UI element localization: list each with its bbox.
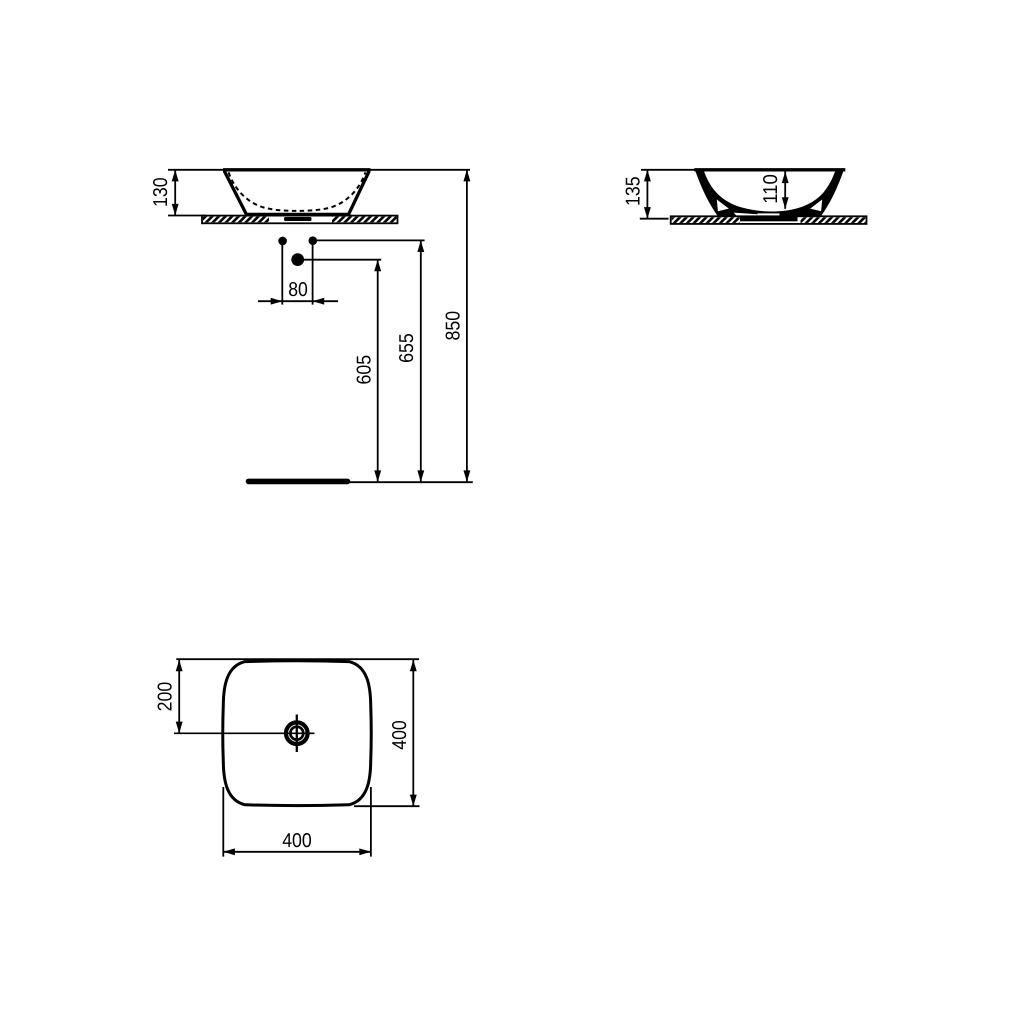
svg-text:655: 655 (396, 333, 418, 363)
svg-text:200: 200 (155, 682, 177, 712)
svg-text:80: 80 (288, 279, 308, 301)
svg-text:400: 400 (389, 720, 411, 750)
svg-text:605: 605 (354, 355, 376, 385)
svg-text:850: 850 (442, 311, 464, 341)
svg-text:400: 400 (282, 830, 312, 852)
svg-text:110: 110 (760, 174, 782, 204)
svg-text:135: 135 (623, 176, 645, 206)
svg-text:130: 130 (150, 177, 172, 207)
